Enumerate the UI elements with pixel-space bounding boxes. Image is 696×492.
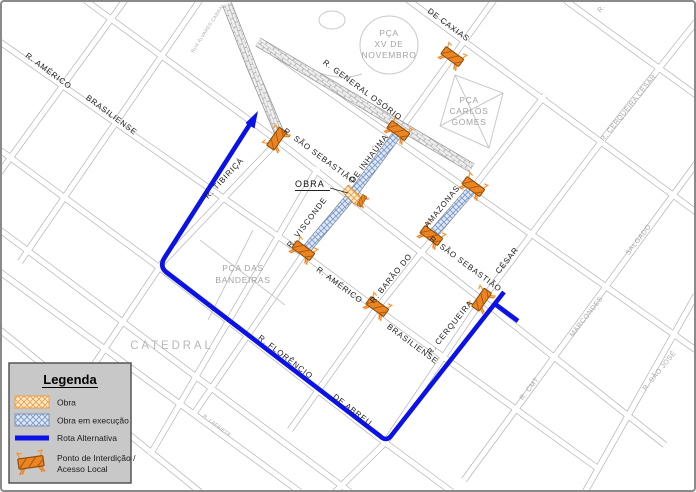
label-pca-xv-line3: NOVEMBRO [361, 50, 416, 60]
legend-label-acesso-local: Acesso Local [57, 464, 108, 474]
map-canvas: OBRA R. AMÉRICO BRASILIENSE R. TIBIRIÇÁ … [0, 0, 696, 492]
label-pca-carlos-gomes-line2: CARLOS [449, 106, 488, 116]
legend-swatch-obra [15, 396, 49, 408]
label-pca-carlos-gomes-line3: GOMES [451, 117, 486, 127]
label-pca-das-bandeiras-line2: BANDEIRAS [215, 275, 270, 285]
legend-label-ponto-interdicao: Ponto de Interdição / [57, 453, 136, 463]
legend: Legenda Obra Obra em execução Rota Alter… [9, 363, 136, 483]
legend-swatch-obra-em-execucao [15, 414, 49, 426]
label-pca-xv-line2: XV DE [375, 39, 404, 49]
legend-label-obra-em-execucao: Obra em execução [57, 416, 129, 426]
label-pca-das-bandeiras-line1: PÇA DAS [222, 263, 264, 273]
obra-callout-label: OBRA [295, 179, 325, 189]
label-pca-carlos-gomes-line1: PÇA [459, 95, 479, 105]
legend-label-rota-alternativa: Rota Alternativa [57, 433, 117, 443]
label-catedral: CATEDRAL [130, 340, 214, 352]
detour-map: OBRA R. AMÉRICO BRASILIENSE R. TIBIRIÇÁ … [0, 0, 696, 492]
label-pca-xv-line1: PÇA [379, 28, 399, 38]
legend-title: Legenda [43, 372, 97, 387]
legend-label-obra: Obra [57, 398, 76, 408]
